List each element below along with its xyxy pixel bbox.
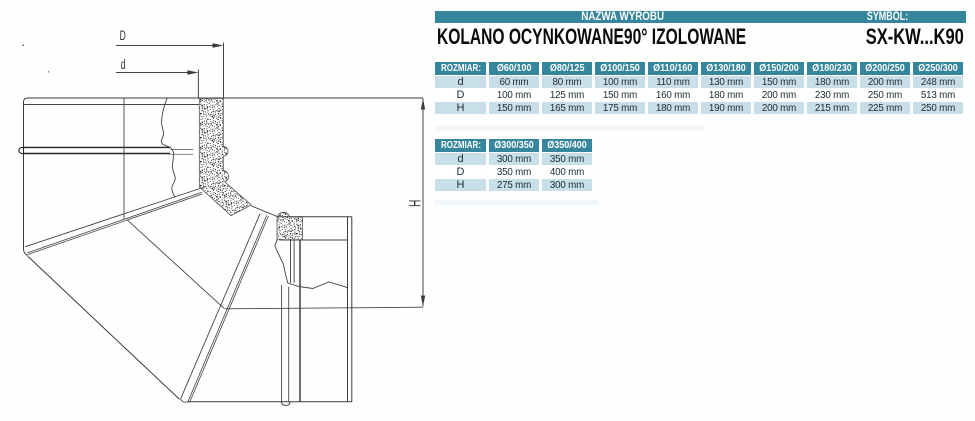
- svg-text:D: D: [120, 29, 126, 43]
- svg-text:H: H: [406, 200, 424, 207]
- svg-text:d: d: [121, 58, 126, 72]
